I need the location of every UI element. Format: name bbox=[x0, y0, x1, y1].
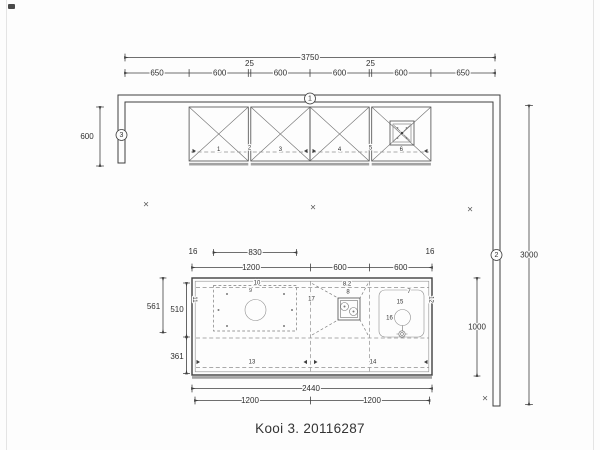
dim-island-left-upper: 510 bbox=[170, 283, 189, 337]
drawing-title: Kooi 3. 20116287 bbox=[255, 421, 365, 436]
island-arrow-right-icon bbox=[314, 360, 318, 364]
hob-width-label: 830 bbox=[248, 248, 262, 257]
island-arrow-left-icon bbox=[424, 360, 428, 364]
island-361-label: 361 bbox=[170, 352, 184, 361]
island-top-600-label-2: 600 bbox=[394, 263, 408, 272]
wall-marker-left: 3 bbox=[116, 130, 127, 141]
dim-island-top-row: 1200 600 600 bbox=[192, 263, 432, 272]
wall-marker-right-label: 2 bbox=[495, 252, 499, 259]
island-arrow-left-icon bbox=[304, 360, 308, 364]
ceiling-mark-2: × bbox=[310, 203, 316, 214]
island-dashed-lines bbox=[196, 282, 429, 372]
dim-right-wall-label: 3000 bbox=[520, 251, 538, 260]
door-arrow-left-icon bbox=[424, 149, 428, 153]
dim-island-hob: 16 830 16 bbox=[189, 247, 435, 257]
island-bottom-1200-label-2: 1200 bbox=[363, 396, 381, 405]
wall-marker-right: 2 bbox=[491, 250, 502, 261]
island-2440-label: 2440 bbox=[302, 384, 320, 393]
ceiling-mark-1: × bbox=[143, 200, 149, 211]
drain-symbol-icon bbox=[397, 331, 408, 337]
island-outline bbox=[192, 278, 432, 375]
dim-overall-width-label: 3750 bbox=[301, 53, 319, 62]
island-top-600-label-1: 600 bbox=[333, 263, 347, 272]
hob-zone: 10 9 bbox=[214, 281, 297, 332]
sink-zone: 7 15 16 bbox=[379, 289, 424, 337]
corner-artifact bbox=[8, 4, 15, 9]
wall-marker-left-label: 3 bbox=[120, 132, 124, 139]
segment-label-600-4: 600 bbox=[394, 69, 408, 78]
tap-label: 16 bbox=[386, 316, 393, 322]
door-arrow-right-icon bbox=[313, 149, 317, 153]
dim-island-left-outer: 561 bbox=[147, 278, 166, 333]
cabinet-label-2: 2 bbox=[248, 146, 252, 152]
segment-label-650-left: 650 bbox=[150, 69, 164, 78]
island-edge-left-label: 11 bbox=[191, 296, 197, 303]
island-bottom-right-label: 14 bbox=[370, 360, 377, 366]
wall-marker-top-label: 1 bbox=[308, 95, 312, 102]
hob-detail-label: 9 bbox=[249, 288, 252, 294]
island-bottom-left-label: 13 bbox=[249, 360, 256, 366]
sink-basin bbox=[379, 290, 424, 337]
dim-left-return: 600 bbox=[80, 107, 103, 166]
island-arrow-right-icon bbox=[197, 360, 201, 364]
island-bottom-1200-label-1: 1200 bbox=[241, 396, 259, 405]
ceiling-mark-4: × bbox=[482, 394, 488, 405]
dim-island-overall: 2440 bbox=[192, 384, 432, 393]
island-top-1200-label: 1200 bbox=[242, 263, 260, 272]
overhang-right-label: 16 bbox=[426, 247, 435, 256]
wall-marker-top: 1 bbox=[305, 93, 316, 104]
dim-left-return-label: 600 bbox=[80, 132, 94, 141]
island-1000-label: 1000 bbox=[468, 323, 486, 332]
hob-zone-label: 10 bbox=[254, 281, 261, 287]
socket-label: 8 bbox=[346, 290, 350, 296]
island-561-label: 561 bbox=[147, 302, 161, 311]
sink-circle bbox=[395, 310, 411, 326]
dim-right-wall: 3000 bbox=[520, 106, 538, 405]
door-arrow-left-icon bbox=[304, 149, 308, 153]
island-inner-edge bbox=[195, 281, 429, 372]
floor-plan-page: 3750 650 600 600 600 600 650 25 25 600 3… bbox=[0, 0, 600, 450]
dim-overall-width: 3750 bbox=[125, 53, 495, 62]
dim-island-depth: 1000 bbox=[468, 278, 486, 376]
island-edge-right-label: 12 bbox=[428, 296, 434, 303]
dim-island-bottom-row: 1200 1200 bbox=[195, 396, 430, 405]
wall-cabinets: 1 2 3 4 5 6 bbox=[189, 107, 431, 164]
gap-label-25-left: 25 bbox=[245, 59, 254, 68]
dim-island-left-lower: 361 bbox=[170, 337, 189, 374]
floor-plan-drawing: 3750 650 600 600 600 600 650 25 25 600 3… bbox=[0, 0, 600, 450]
ceiling-mark-3: × bbox=[467, 205, 473, 216]
segment-label-600-1: 600 bbox=[213, 69, 227, 78]
door-arrow-right-icon bbox=[193, 149, 197, 153]
island-edge-center-label: 17 bbox=[308, 297, 315, 303]
island-510-label: 510 bbox=[170, 305, 184, 314]
socket-ref-label: 8.2 bbox=[343, 282, 352, 288]
sink-label: 15 bbox=[397, 300, 404, 306]
segment-label-600-2: 600 bbox=[274, 69, 288, 78]
segment-label-650-right: 650 bbox=[456, 69, 470, 78]
hob-circle bbox=[245, 300, 266, 321]
gap-label-25-right: 25 bbox=[366, 59, 375, 68]
segment-label-600-3: 600 bbox=[333, 69, 347, 78]
cabinet-label-5: 5 bbox=[369, 146, 373, 152]
overhang-left-label: 16 bbox=[189, 247, 198, 256]
